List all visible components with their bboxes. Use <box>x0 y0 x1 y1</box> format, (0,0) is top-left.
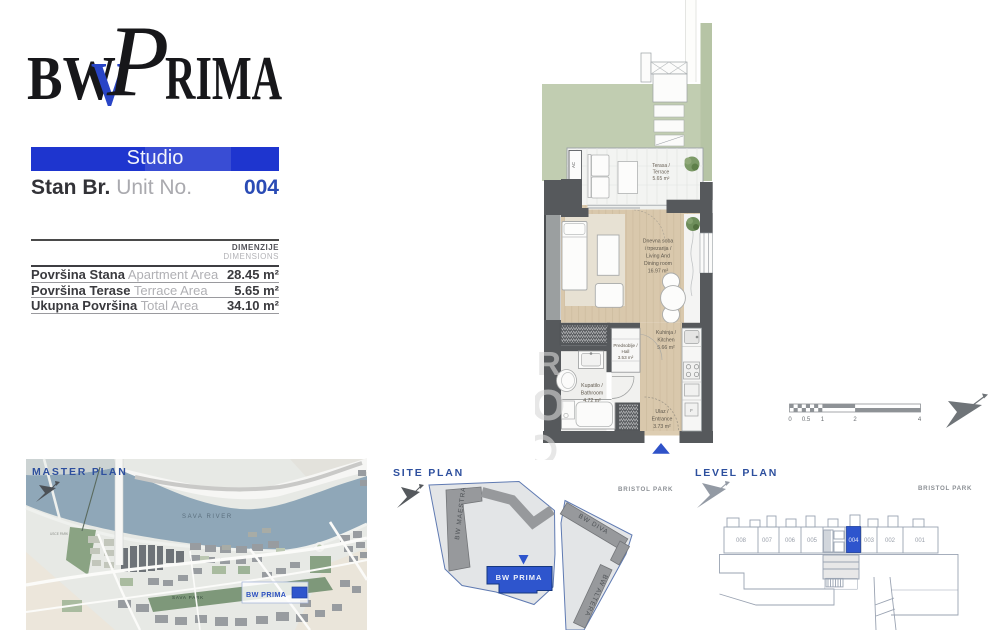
svg-text:LEVEL PLAN: LEVEL PLAN <box>695 467 778 479</box>
svg-text:5.65 m²: 5.65 m² <box>653 176 670 182</box>
svg-text:4: 4 <box>918 417 922 423</box>
svg-text:BW PRIMA: BW PRIMA <box>496 573 543 582</box>
svg-text:007: 007 <box>762 538 773 544</box>
svg-text:Terasa /: Terasa / <box>652 163 670 169</box>
svg-text:005: 005 <box>807 538 818 544</box>
svg-text:002: 002 <box>885 538 896 544</box>
svg-text:Entrance: Entrance <box>652 417 673 423</box>
svg-text:16.97 m²: 16.97 m² <box>648 269 669 275</box>
svg-text:USCE PARK: USCE PARK <box>50 532 69 536</box>
svg-text:Bathroom: Bathroom <box>581 391 604 397</box>
svg-text:Hall: Hall <box>622 349 630 354</box>
svg-text:001: 001 <box>915 538 926 544</box>
svg-text:Dining room: Dining room <box>644 261 672 267</box>
svg-text:Living And: Living And <box>646 254 670 260</box>
svg-text:1: 1 <box>821 417 825 423</box>
svg-text:Kitchen: Kitchen <box>657 338 674 344</box>
svg-text:Dnevna soba: Dnevna soba <box>643 239 674 245</box>
svg-text:BRISTOL PARK: BRISTOL PARK <box>918 485 972 492</box>
svg-text:Terrace: Terrace <box>653 170 670 176</box>
svg-text:BW PRIMA: BW PRIMA <box>246 590 286 599</box>
svg-text:Ulaz /: Ulaz / <box>655 409 669 415</box>
svg-text:SAVA PARK: SAVA PARK <box>172 595 204 600</box>
svg-text:006: 006 <box>785 538 796 544</box>
svg-text:R: R <box>537 345 561 382</box>
svg-text:3.53 m²: 3.53 m² <box>618 355 634 360</box>
svg-text:MASTER PLAN: MASTER PLAN <box>32 466 128 478</box>
svg-text:BRISTOL PARK: BRISTOL PARK <box>618 486 673 493</box>
svg-text:5.66 m²: 5.66 m² <box>657 345 675 351</box>
svg-text:SITE PLAN: SITE PLAN <box>393 467 464 479</box>
svg-text:003: 003 <box>864 538 875 544</box>
svg-text:Kupatilo /: Kupatilo / <box>581 383 603 389</box>
svg-text:i trpezarija /: i trpezarija / <box>645 246 672 252</box>
svg-text:Kuhinja /: Kuhinja / <box>656 330 677 336</box>
svg-text:0: 0 <box>788 417 792 423</box>
svg-text:008: 008 <box>736 538 747 544</box>
svg-text:3.73 m²: 3.73 m² <box>653 424 671 430</box>
svg-text:Predsoblje /: Predsoblje / <box>613 343 638 348</box>
svg-text:AC: AC <box>571 162 576 168</box>
svg-text:O: O <box>535 381 565 430</box>
svg-text:0.5: 0.5 <box>802 417 811 423</box>
svg-text:004: 004 <box>848 538 859 544</box>
svg-text:SAVA RIVER: SAVA RIVER <box>182 514 233 520</box>
svg-text:F: F <box>690 408 693 413</box>
svg-text:4.72 m²: 4.72 m² <box>583 398 601 404</box>
svg-text:2: 2 <box>853 417 857 423</box>
